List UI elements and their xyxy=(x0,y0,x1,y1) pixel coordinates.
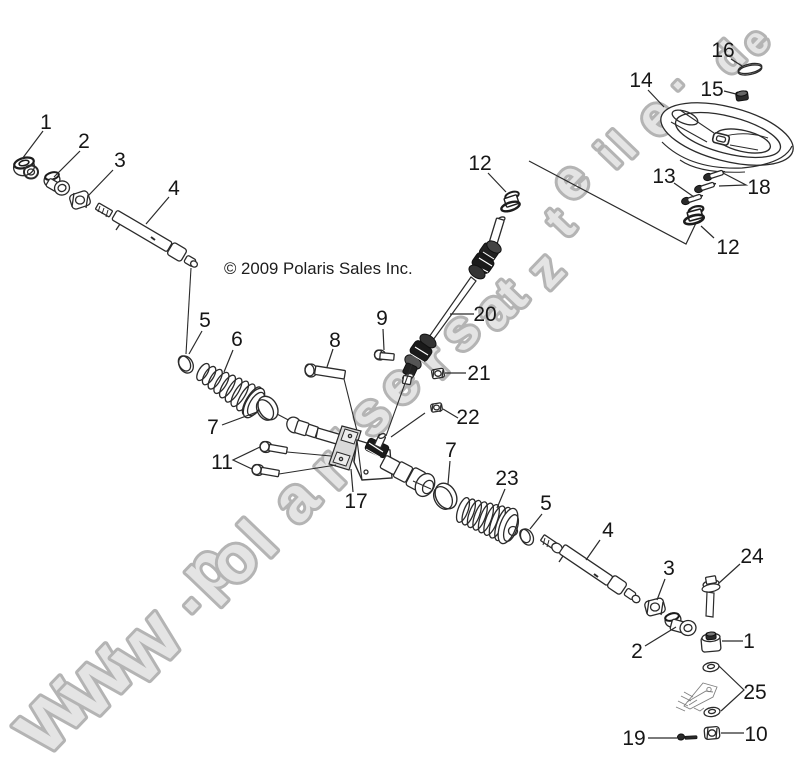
svg-text:4: 4 xyxy=(602,519,614,542)
svg-text:22: 22 xyxy=(456,406,479,429)
svg-text:14: 14 xyxy=(629,69,653,92)
svg-text:8: 8 xyxy=(329,329,341,352)
svg-text:3: 3 xyxy=(663,557,675,580)
svg-text:17: 17 xyxy=(344,490,367,513)
svg-text:12: 12 xyxy=(716,236,739,259)
svg-text:© 2009 Polaris Sales Inc.: © 2009 Polaris Sales Inc. xyxy=(224,259,413,278)
svg-text:18: 18 xyxy=(747,176,770,199)
svg-text:3: 3 xyxy=(114,149,126,172)
svg-text:1: 1 xyxy=(40,111,52,134)
svg-text:23: 23 xyxy=(495,467,518,490)
svg-text:20: 20 xyxy=(473,303,496,326)
svg-text:16: 16 xyxy=(711,39,734,62)
svg-text:7: 7 xyxy=(445,439,457,462)
svg-text:5: 5 xyxy=(540,492,552,515)
svg-text:2: 2 xyxy=(78,130,90,153)
svg-text:5: 5 xyxy=(199,309,211,332)
svg-text:9: 9 xyxy=(376,307,388,330)
svg-text:1: 1 xyxy=(743,630,755,653)
svg-text:7: 7 xyxy=(207,416,219,439)
svg-text:21: 21 xyxy=(467,362,490,385)
svg-text:15: 15 xyxy=(700,78,723,101)
svg-text:25: 25 xyxy=(743,681,766,704)
svg-text:10: 10 xyxy=(744,723,767,746)
svg-text:4: 4 xyxy=(168,177,180,200)
svg-text:24: 24 xyxy=(740,545,764,568)
svg-text:6: 6 xyxy=(231,328,243,351)
svg-text:12: 12 xyxy=(468,152,491,175)
svg-text:19: 19 xyxy=(622,727,645,750)
svg-text:2: 2 xyxy=(631,640,643,663)
svg-text:11: 11 xyxy=(211,451,233,474)
svg-text:13: 13 xyxy=(652,165,675,188)
